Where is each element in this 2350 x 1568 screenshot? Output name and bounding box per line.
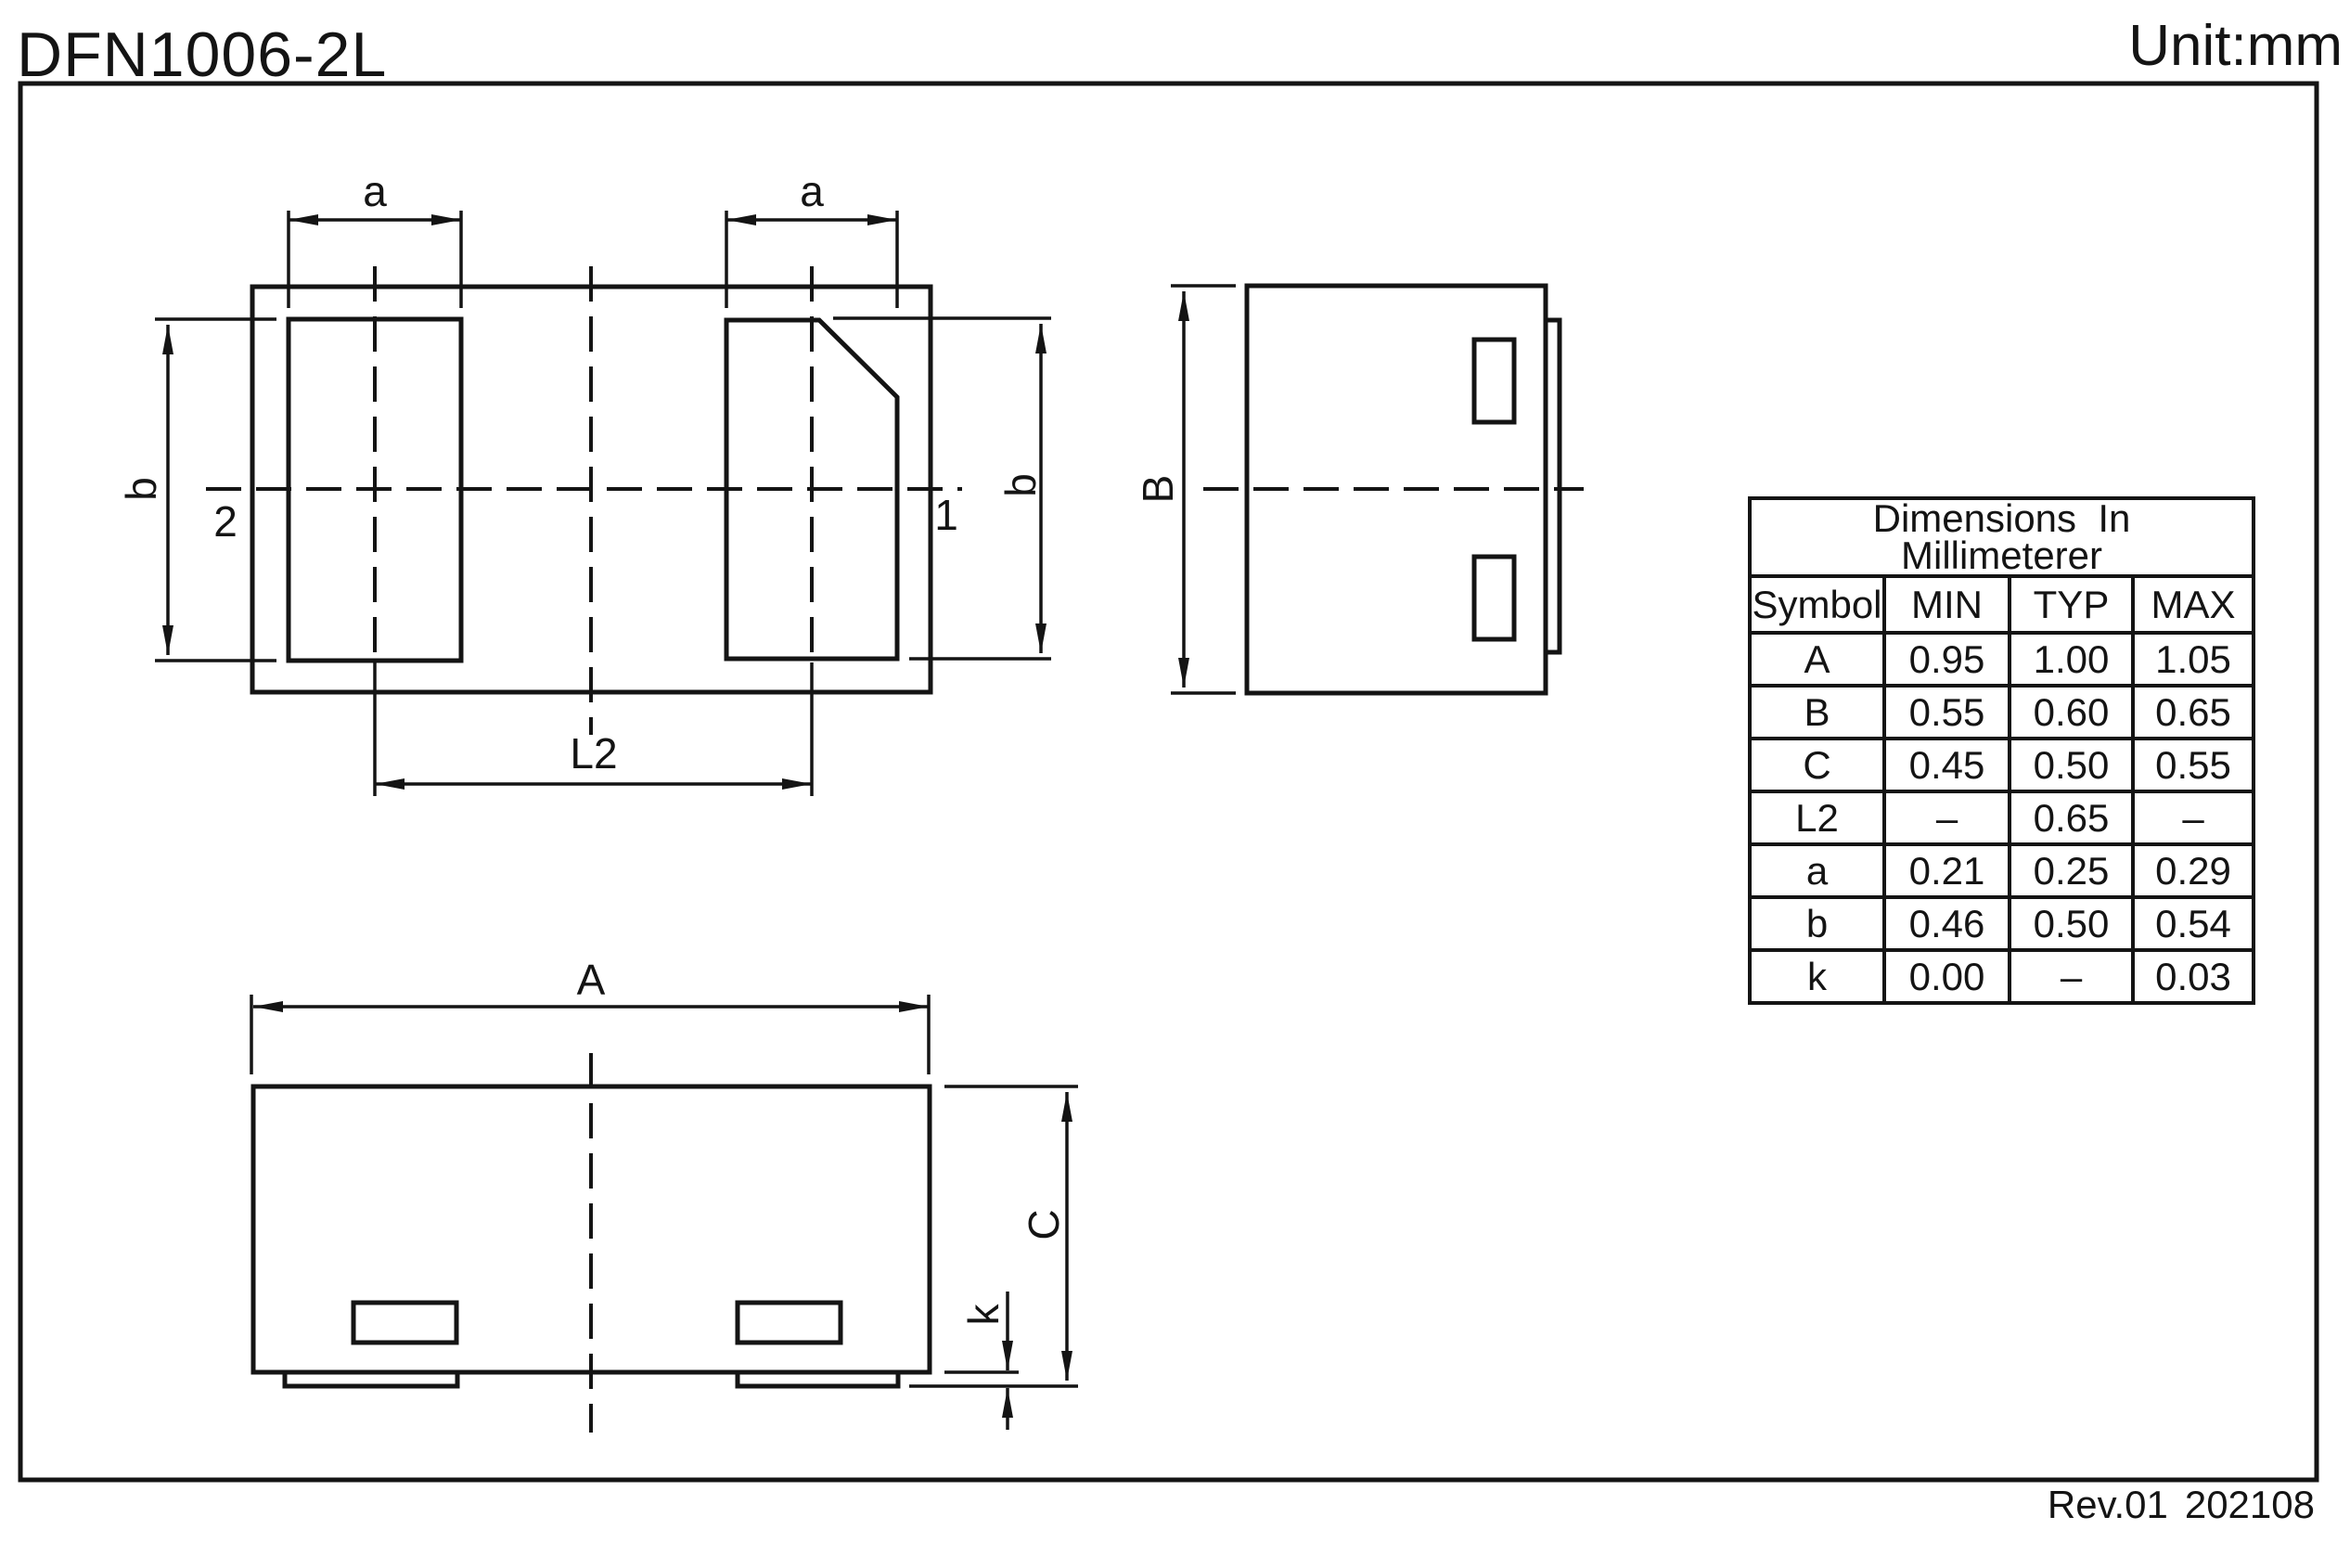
dim-label-a: a xyxy=(363,167,387,215)
revision-label: Rev.01 xyxy=(2048,1483,2168,1526)
dimensions-table: Dimensions In Millimeterer Symbol MIN TY… xyxy=(1748,496,2255,1005)
table-row: a 0.21 0.25 0.29 xyxy=(1750,844,2254,897)
cell-typ: 0.65 xyxy=(2010,791,2133,844)
dim-label-k: k xyxy=(959,1304,1008,1326)
dim-label-b: b xyxy=(117,477,165,501)
terminal-bottom xyxy=(1474,557,1514,639)
cell-typ: 0.25 xyxy=(2010,844,2133,897)
cell-max: 0.29 xyxy=(2133,844,2254,897)
table-title: Dimensions In Millimeterer xyxy=(1750,498,2254,576)
pin-2-label: 2 xyxy=(213,497,238,546)
cell-symbol: b xyxy=(1750,897,1884,950)
cell-min: 0.45 xyxy=(1884,739,2010,791)
cell-max: – xyxy=(2133,791,2254,844)
cell-symbol: k xyxy=(1750,950,1884,1003)
dim-label-A: A xyxy=(577,956,606,1004)
col-header-min: MIN xyxy=(1884,576,2010,633)
dim-label-l2: L2 xyxy=(570,729,617,778)
cell-typ: 1.00 xyxy=(2010,633,2133,686)
table-row: B 0.55 0.60 0.65 xyxy=(1750,686,2254,739)
table-row: b 0.46 0.50 0.54 xyxy=(1750,897,2254,950)
front-view: A C k xyxy=(251,956,1078,1433)
dim-C: C xyxy=(909,1086,1078,1386)
cell-typ: 0.50 xyxy=(2010,739,2133,791)
lead-stub-left xyxy=(285,1372,457,1386)
cell-min: 0.95 xyxy=(1884,633,2010,686)
col-header-symbol: Symbol xyxy=(1750,576,1884,633)
cell-min: 0.00 xyxy=(1884,950,2010,1003)
cell-typ: 0.50 xyxy=(2010,897,2133,950)
table-row: k 0.00 – 0.03 xyxy=(1750,950,2254,1003)
table-title-line2: Millimeterer xyxy=(1752,537,2252,574)
side-view: B xyxy=(1134,286,1584,693)
cell-max: 1.05 xyxy=(2133,633,2254,686)
table-row: L2 – 0.65 – xyxy=(1750,791,2254,844)
dim-label-b: b xyxy=(996,473,1045,497)
cell-symbol: L2 xyxy=(1750,791,1884,844)
cell-symbol: A xyxy=(1750,633,1884,686)
dim-label-C: C xyxy=(1020,1209,1068,1240)
dim-label-a: a xyxy=(800,167,824,215)
revision-date: 202108 xyxy=(2185,1483,2315,1526)
pin-1-label: 1 xyxy=(934,491,958,539)
dim-k: k xyxy=(944,1292,1019,1430)
table-header-row: Symbol MIN TYP MAX xyxy=(1750,576,2254,633)
col-header-typ: TYP xyxy=(2010,576,2133,633)
cell-min: 0.46 xyxy=(1884,897,2010,950)
dim-l2: L2 xyxy=(375,662,812,796)
terminal-left xyxy=(353,1303,456,1343)
cell-typ: – xyxy=(2010,950,2133,1003)
top-view: a a b b xyxy=(117,167,1051,796)
revision-note: Rev.01202108 xyxy=(2031,1483,2315,1527)
terminal-top xyxy=(1474,340,1514,422)
cell-max: 0.54 xyxy=(2133,897,2254,950)
cell-min: – xyxy=(1884,791,2010,844)
drawing-sheet: DFN1006-2L Unit:mm a xyxy=(0,0,2350,1568)
cell-max: 0.03 xyxy=(2133,950,2254,1003)
lead-stub-right xyxy=(738,1372,898,1386)
table-title-line1: Dimensions In xyxy=(1752,500,2252,537)
terminal-right xyxy=(738,1303,841,1343)
table-title-row: Dimensions In Millimeterer xyxy=(1750,498,2254,576)
cell-min: 0.21 xyxy=(1884,844,2010,897)
cell-min: 0.55 xyxy=(1884,686,2010,739)
lead-frame-edge xyxy=(1546,320,1560,652)
body-outline xyxy=(1247,286,1546,693)
cell-symbol: B xyxy=(1750,686,1884,739)
cell-symbol: C xyxy=(1750,739,1884,791)
dim-label-B: B xyxy=(1134,475,1182,504)
col-header-max: MAX xyxy=(2133,576,2254,633)
cell-max: 0.65 xyxy=(2133,686,2254,739)
cell-symbol: a xyxy=(1750,844,1884,897)
cell-typ: 0.60 xyxy=(2010,686,2133,739)
table-row: C 0.45 0.50 0.55 xyxy=(1750,739,2254,791)
cell-max: 0.55 xyxy=(2133,739,2254,791)
table-row: A 0.95 1.00 1.05 xyxy=(1750,633,2254,686)
